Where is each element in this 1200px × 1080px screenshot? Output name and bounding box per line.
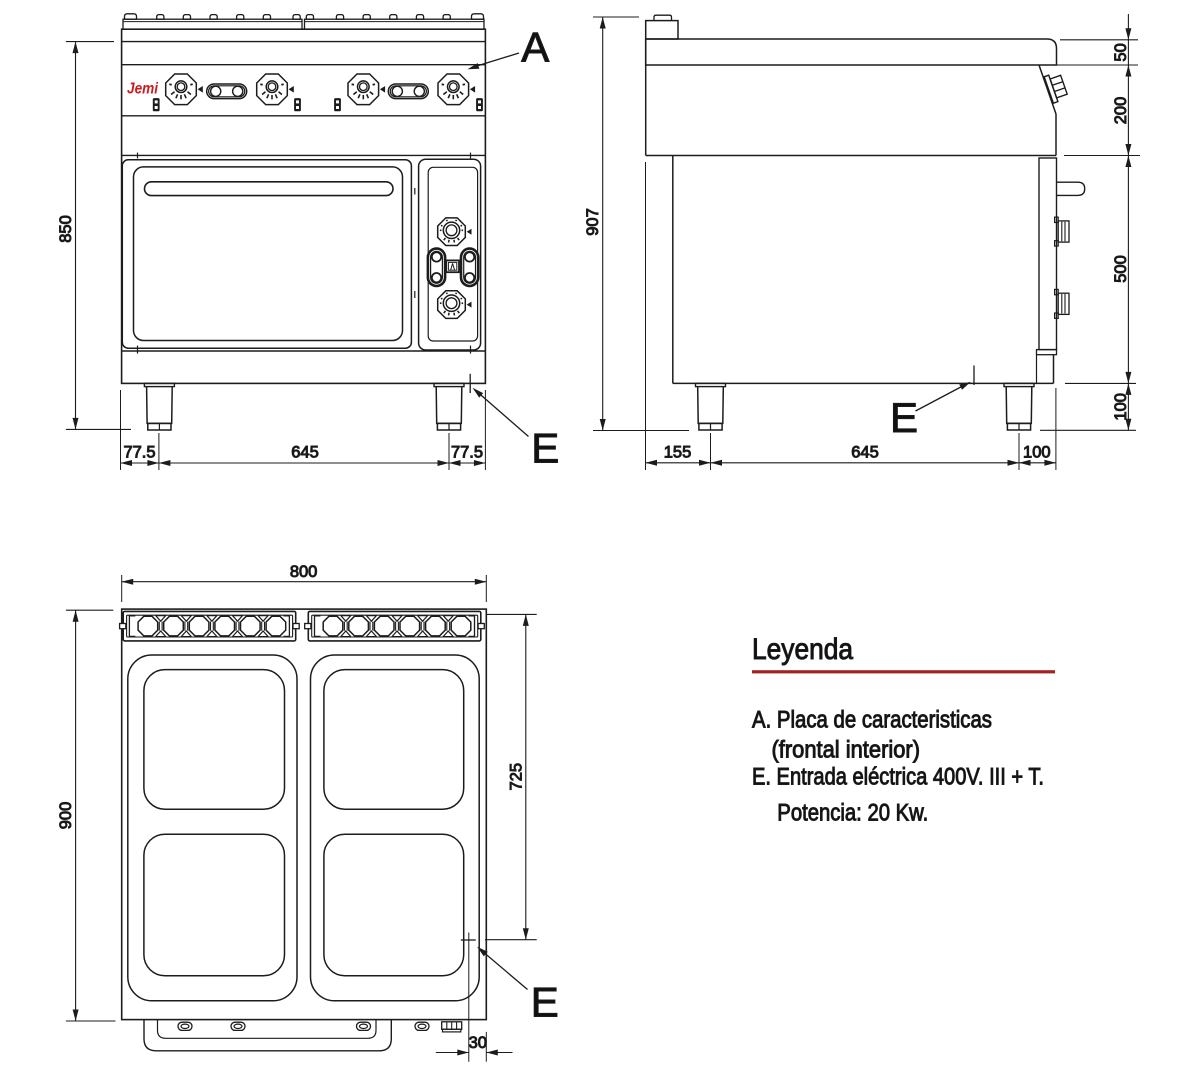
svg-text:Potencia: 20 Kw.: Potencia: 20 Kw.	[777, 800, 928, 827]
svg-text:50: 50	[1112, 43, 1130, 61]
svg-text:A. Placa de caracteristicas: A. Placa de caracteristicas	[752, 706, 992, 733]
svg-text:645: 645	[291, 444, 319, 462]
svg-text:645: 645	[851, 444, 879, 462]
svg-text:800: 800	[290, 563, 318, 581]
svg-text:A: A	[521, 23, 549, 70]
svg-text:77.5: 77.5	[123, 444, 155, 462]
svg-text:155: 155	[664, 444, 692, 462]
svg-text:200: 200	[1112, 97, 1130, 125]
svg-text:30: 30	[469, 1034, 487, 1052]
svg-text:100: 100	[1023, 444, 1051, 462]
svg-text:907: 907	[584, 208, 602, 236]
svg-text:725: 725	[508, 763, 526, 791]
svg-text:E: E	[531, 424, 559, 471]
svg-text:E: E	[531, 979, 559, 1026]
svg-text:E. Entrada eléctrica 400V. III: E. Entrada eléctrica 400V. III + T.	[752, 764, 1044, 791]
svg-text:(frontal interior): (frontal interior)	[772, 737, 921, 764]
svg-text:900: 900	[57, 802, 75, 830]
svg-text:500: 500	[1112, 255, 1130, 283]
svg-text:850: 850	[57, 215, 75, 243]
svg-text:E: E	[890, 394, 918, 441]
svg-text:77.5: 77.5	[451, 444, 483, 462]
svg-text:Leyenda: Leyenda	[752, 633, 853, 666]
svg-text:100: 100	[1112, 393, 1130, 421]
svg-text:Jemi: Jemi	[127, 81, 158, 98]
